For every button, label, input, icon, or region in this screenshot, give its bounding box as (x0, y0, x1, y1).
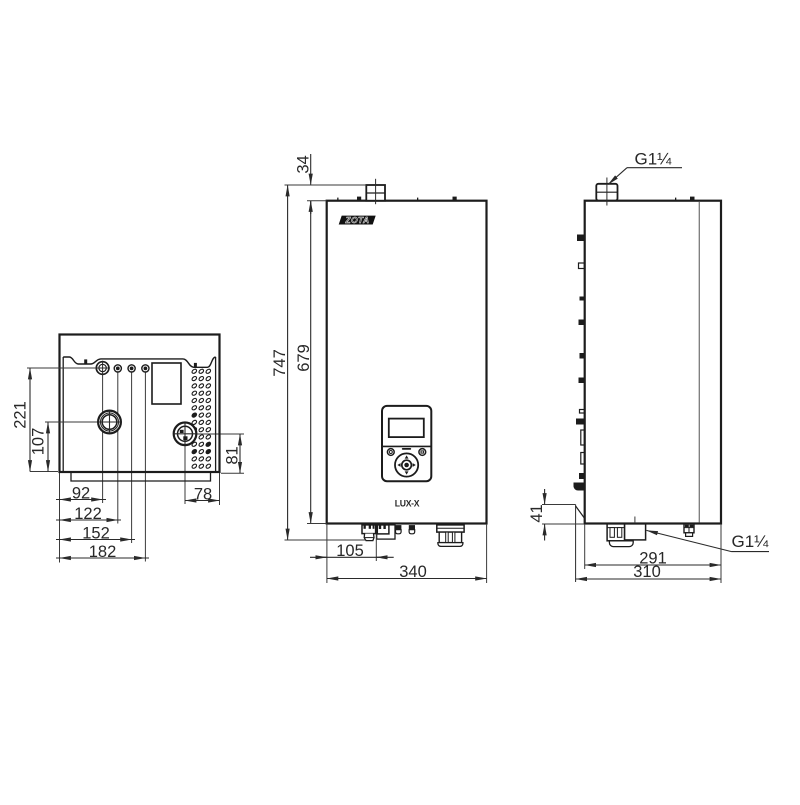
svg-text:310: 310 (633, 563, 661, 581)
svg-text:LUX-X: LUX-X (395, 498, 421, 508)
svg-text:679: 679 (295, 344, 313, 372)
svg-text:152: 152 (82, 524, 110, 542)
svg-text:340: 340 (399, 563, 427, 581)
svg-text:92: 92 (72, 484, 90, 502)
svg-text:78: 78 (194, 485, 212, 503)
svg-text:G1¼: G1¼ (732, 532, 770, 551)
svg-text:81: 81 (223, 446, 241, 464)
svg-text:182: 182 (89, 543, 117, 561)
svg-text:221: 221 (12, 401, 30, 429)
svg-text:41: 41 (528, 504, 546, 522)
svg-text:ZOTA: ZOTA (345, 215, 370, 225)
svg-text:747: 747 (271, 349, 289, 377)
svg-text:G1¼: G1¼ (635, 150, 673, 169)
svg-text:107: 107 (30, 428, 48, 456)
svg-text:34: 34 (295, 155, 313, 173)
svg-text:122: 122 (74, 505, 102, 523)
svg-text:105: 105 (336, 542, 364, 560)
